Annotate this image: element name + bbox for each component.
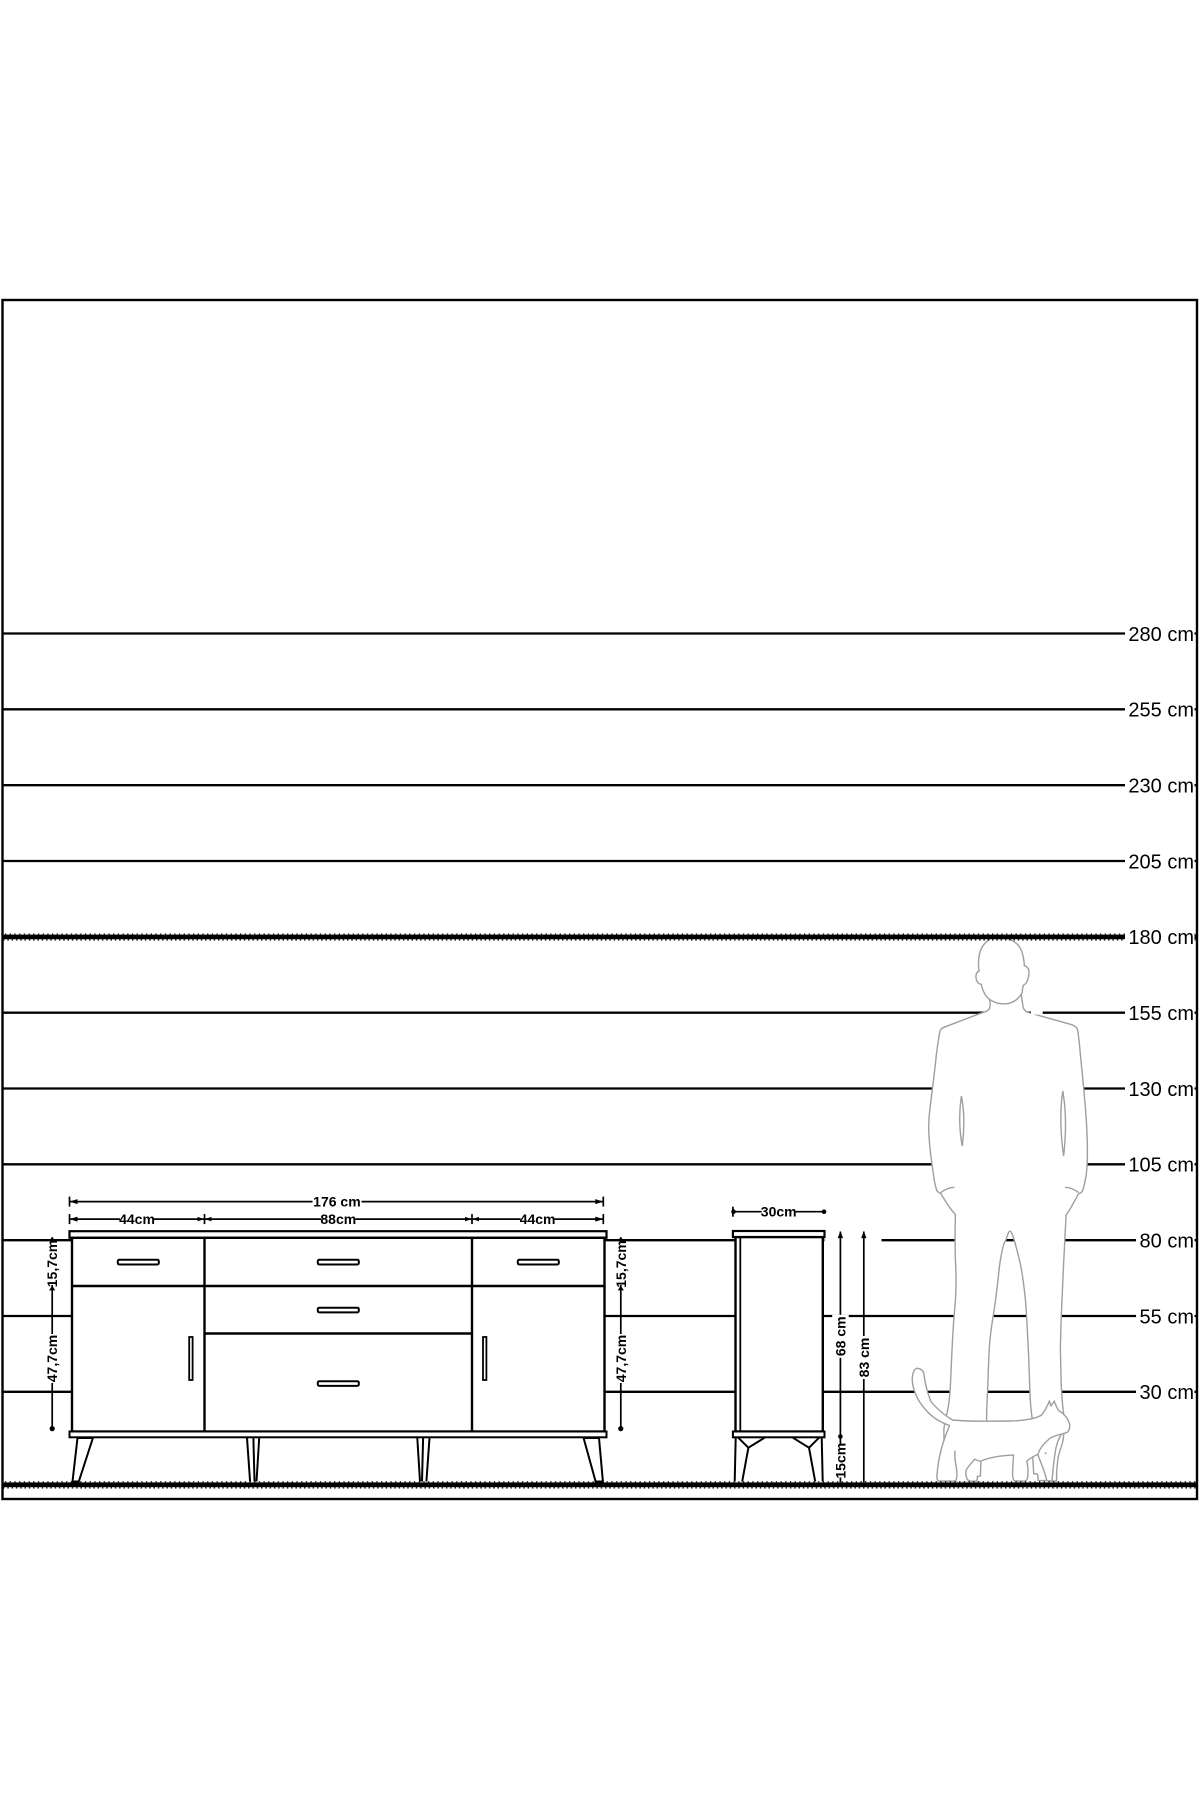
svg-text:255 cm: 255 cm: [1128, 700, 1194, 722]
svg-text:15,7cm: 15,7cm: [613, 1240, 629, 1287]
svg-text:44cm: 44cm: [119, 1211, 155, 1227]
svg-text:105 cm: 105 cm: [1128, 1155, 1194, 1177]
svg-text:47,7cm: 47,7cm: [44, 1335, 60, 1382]
svg-text:68 cm: 68 cm: [832, 1316, 848, 1356]
svg-text:205 cm: 205 cm: [1128, 851, 1194, 873]
svg-text:15cm: 15cm: [832, 1443, 848, 1479]
svg-text:176 cm: 176 cm: [313, 1194, 360, 1210]
svg-text:83 cm: 83 cm: [856, 1338, 872, 1378]
svg-text:30 cm: 30 cm: [1140, 1382, 1194, 1404]
svg-text:15,7cm: 15,7cm: [44, 1240, 60, 1287]
svg-text:180 cm: 180 cm: [1128, 927, 1194, 949]
svg-text:155 cm: 155 cm: [1128, 1003, 1194, 1025]
svg-text:88cm: 88cm: [320, 1211, 356, 1227]
svg-text:47,7cm: 47,7cm: [613, 1335, 629, 1382]
svg-text:130 cm: 130 cm: [1128, 1079, 1194, 1101]
svg-text:55 cm: 55 cm: [1140, 1306, 1194, 1328]
svg-text:280 cm: 280 cm: [1128, 624, 1194, 646]
svg-text:44cm: 44cm: [520, 1211, 556, 1227]
svg-text:30cm: 30cm: [761, 1204, 797, 1220]
svg-text:230 cm: 230 cm: [1128, 776, 1194, 798]
svg-text:80 cm: 80 cm: [1140, 1231, 1194, 1253]
